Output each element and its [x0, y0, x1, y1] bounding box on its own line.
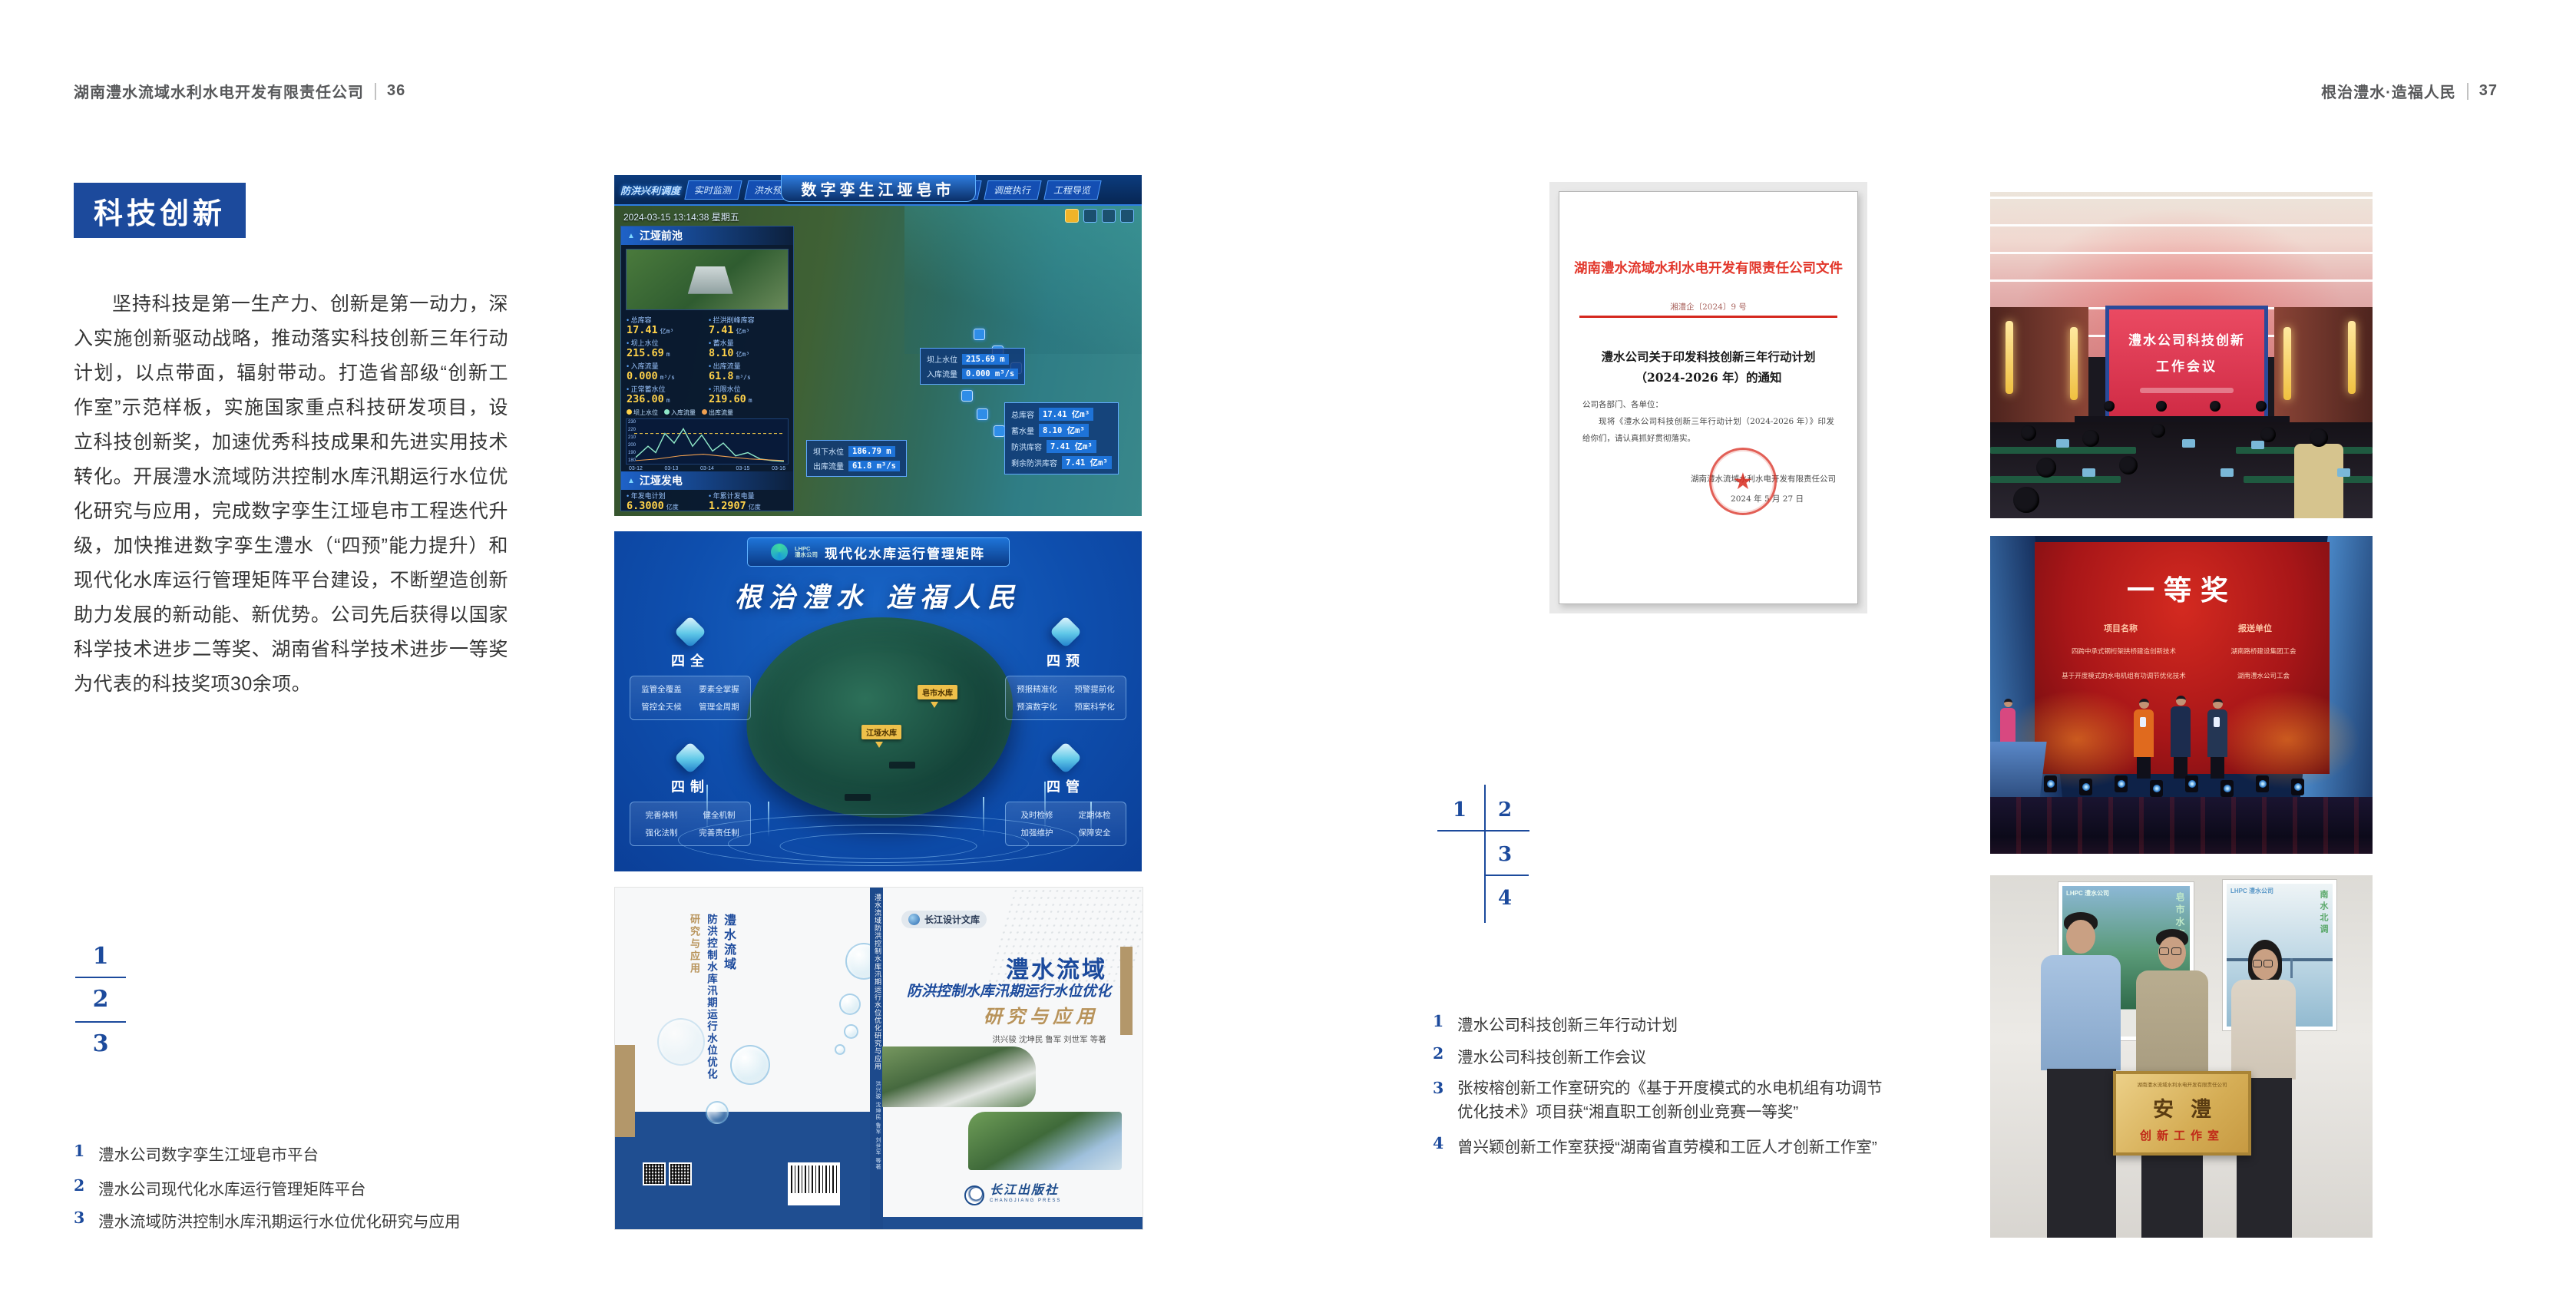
laptop [2221, 468, 2234, 477]
caption-number: 3 [1433, 1076, 1450, 1124]
stage-light [2115, 775, 2128, 792]
wall-lamp [2070, 327, 2078, 400]
stage-light [2079, 779, 2092, 795]
sensor-marker-icon [961, 390, 973, 402]
figure-index-divider [1437, 830, 1529, 832]
document-number: 湘澧企〔2024〕9 号 [1559, 301, 1857, 312]
panel-sizhi: 四制 完善体制 健全机制 强化法制 完善责任制 [630, 746, 751, 846]
caption-number: 3 [74, 1208, 91, 1232]
figure-index-divider [75, 977, 126, 978]
body-paragraph: 坚持科技是第一生产力、创新是第一动力，深入实施创新驱动战略，推动落实科技创新三年… [74, 287, 508, 702]
panel-siquan: 四全 监管全覆盖 要素全掌握 管控全天候 管理全周期 [630, 620, 751, 720]
stage-light [2044, 775, 2057, 792]
water-bubble [839, 994, 861, 1015]
photo-innovation-studio-plaque: LHPC 澧水公司 皂市水库 LHPC 澧水公司 南水北调 湖南澧水流域水利水电… [1990, 875, 2373, 1238]
cover-photo-valley-dam [882, 1046, 1036, 1107]
water-bubble [835, 1044, 845, 1055]
book-spine: 澧水流域防洪控制水库汛期运行水位优化研究与应用 洪兴骏 沈坤民 鲁军 刘世军 等… [870, 888, 883, 1229]
reservoir-stats: 总库容17.41亿m³ 拦洪削峰库容7.41亿m³ 坝上水位215.69m 蓄水… [621, 314, 793, 407]
caption-row: 3 澧水流域防洪控制水库汛期运行水位优化研究与应用 [74, 1208, 461, 1232]
power-panel-header: ▲ 江垭发电 [621, 471, 793, 490]
document-salutation: 公司各部门、各单位： [1582, 396, 1834, 413]
red-seal-icon: ★ [1709, 448, 1777, 515]
laptop [2082, 468, 2095, 477]
panel-header: ▲ 江垭前池 [621, 226, 793, 245]
caption-row: 2 澧水公司现代化水库运行管理矩阵平台 [74, 1176, 366, 1199]
qr-code [643, 1162, 666, 1185]
attendee-head [2021, 425, 2036, 441]
panel-siguan: 四管 及时检修 定期体检 加强维护 保障安全 [1005, 746, 1126, 846]
caption-number: 1 [1433, 1012, 1450, 1035]
sensor-marker-icon [974, 329, 985, 340]
desk-row [1990, 476, 2121, 483]
stage-light [2221, 780, 2234, 797]
presenter-suit [2167, 696, 2194, 779]
platform-title: 现代化水库运行管理矩阵 [825, 543, 985, 562]
caption-number: 4 [1433, 1134, 1450, 1157]
book-authors: 洪兴骏 沈坤民 鲁军 刘世军 等著 [982, 1033, 1116, 1045]
figure-official-document: 湖南澧水流域水利水电开发有限责任公司文件 湘澧企〔2024〕9 号 澧水公司关于… [1549, 182, 1867, 613]
person-head [2066, 920, 2095, 954]
forecast-icon [1050, 616, 1082, 648]
photo-award-ceremony: 一等奖 项目名称 报送单位 四跨中承式钢桁架拱桥建造创新技术 湖南路桥建设集团工… [1990, 536, 2373, 854]
project-name: 四跨中承式钢桁架拱桥建造创新技术 [2047, 646, 2201, 656]
laptop [2337, 468, 2350, 477]
panelist-head [2210, 401, 2221, 412]
tan-accent-block [615, 1045, 635, 1137]
marker-jiangya-reservoir: 江垭水库 [861, 725, 901, 739]
plaque-company-line: 湖南澧水流域水利水电开发有限责任公司 [2116, 1080, 2248, 1088]
caption-row: 1 澧水公司数字孪生江垭皂市平台 [74, 1142, 319, 1165]
marker-pin-icon [875, 742, 883, 752]
submitting-unit: 湖南路桥建设集团工会 [2210, 646, 2317, 656]
reservoir-water [904, 204, 1142, 354]
submitting-unit: 湖南澧水公司工会 [2210, 671, 2317, 680]
toolbar-icons [1065, 209, 1134, 223]
tab-dispatch-execute: 调度执行 [984, 180, 1041, 200]
stat-cell: 入库流量0.000m³/s [627, 361, 706, 383]
audience-area [1990, 422, 2373, 518]
attendee-in-yellow [2294, 444, 2343, 518]
caption-text: 澧水公司数字孪生江垭皂市平台 [98, 1142, 319, 1165]
column-header-unit: 报送单位 [2238, 622, 2272, 634]
laptop [2056, 439, 2069, 448]
panelist-head [2104, 401, 2115, 412]
chart-y-axis: 230220210 200190180 [628, 419, 636, 464]
wall-lamp [2348, 321, 2356, 394]
glasses-icon [2159, 947, 2169, 955]
awardee-navy [2204, 699, 2231, 779]
small-station-marker [845, 794, 871, 801]
screen-title-line2: 工作会议 [2109, 355, 2264, 375]
marker-pin-icon [931, 702, 938, 712]
document-body: 现将《澧水公司科技创新三年行动计划（2024-2026 年）》印发给你们，请认真… [1582, 413, 1834, 447]
wall-lamp [2283, 327, 2291, 400]
figure-index-2: 2 [81, 986, 120, 1013]
chart-x-axis: 03-1203-1303-14 03-1503-16 [621, 466, 793, 471]
attendee-head [2036, 458, 2056, 478]
stat-cell: 汛限水位219.60m [709, 384, 788, 406]
laptop [2182, 439, 2195, 448]
photo-innovation-meeting: 澧水公司科技创新 工作会议 [1990, 192, 2373, 518]
legend-item: 入库流量 [664, 408, 696, 417]
document-red-rule [1579, 316, 1837, 318]
glasses-icon [2171, 947, 2181, 955]
stat-cell: 拦洪削峰库容7.41亿m³ [709, 315, 788, 337]
locate-icon [1102, 209, 1116, 223]
figure-digital-twin-platform: 防洪兴利调度 实时监测 洪水预报 防汛预警 风险预判 预案生成 调度执行 工程导… [614, 175, 1142, 516]
header-left: 湖南澧水流域水利水电开发有限责任公司 36 [74, 80, 405, 102]
stat-cell: 坝上水位215.69m [627, 338, 706, 360]
stage-light [2256, 775, 2269, 792]
back-cover-title: 澧水流域 防洪控制水库汛期运行水位优化 研究与应用 [686, 914, 736, 1138]
plaque-name: 安澧 [2116, 1093, 2248, 1122]
popup-row: 入库流量0.000 m³/s [927, 368, 1018, 379]
page-number-right: 37 [2479, 82, 2498, 100]
power-panel-title: 江垭发电 [640, 473, 683, 488]
figure-index-divider [75, 1021, 126, 1023]
host-in-pink [1996, 699, 2019, 748]
person-pants [2047, 1069, 2116, 1238]
caption-text: 澧水流域防洪控制水库汛期运行水位优化研究与应用 [98, 1208, 461, 1232]
screen-content: 澧水公司科技创新 工作会议 [2109, 309, 2264, 421]
popup-row: 蓄水量8.10 亿m³ [1011, 424, 1112, 437]
panel-siyu: 四预 预报精准化 预警提前化 预演数字化 预案科学化 [1005, 620, 1126, 720]
settings-icon [1120, 209, 1134, 223]
section-title: 科技创新 [94, 190, 226, 232]
power-stats: 年发电计划6.3000亿度 年累计发电量1.2907亿度 月累计发电量3359.… [621, 490, 793, 511]
sensor-marker-icon [994, 425, 1005, 437]
book-subtitle2: 研究与应用 [964, 1001, 1118, 1028]
panelist-head [2156, 401, 2167, 412]
upstream-popup: 坝上水位215.69 m 入库流量0.000 m³/s [920, 348, 1025, 385]
figure-index-4: 4 [1490, 887, 1520, 910]
lhpc-logo: LHPC 澧水公司 [2066, 889, 2109, 898]
popup-row: 坝下水位186.79 m [813, 445, 900, 457]
studio-plaque: 湖南澧水流域水利水电开发有限责任公司 安澧 创新工作室 [2113, 1071, 2251, 1156]
document-title-line1: 澧水公司关于印发科技创新三年行动计划 [1559, 348, 1857, 365]
user-icon [1065, 209, 1079, 223]
ripple-ring [779, 833, 977, 859]
panel-title: 四管 [1005, 776, 1126, 796]
legend-item: 坝上水位 [627, 408, 658, 417]
plaque-subtitle: 创新工作室 [2116, 1127, 2248, 1143]
caption-row: 4 曾兴颖创新工作室获授“湖南省直劳模和工匠人才创新工作室” [1433, 1134, 1877, 1157]
stat-cell: 正常蓄水位236.00m [627, 384, 706, 406]
person-khaki-polo [2136, 970, 2208, 1078]
caption-number: 1 [74, 1142, 91, 1165]
panel-items: 及时检修 定期体检 加强维护 保障安全 [1005, 802, 1126, 846]
panel-icon: ▲ [627, 477, 635, 485]
platform-header: LHPC澧水公司 现代化水库运行管理矩阵 [747, 537, 1010, 567]
stage-light [2150, 780, 2163, 797]
caption-row: 2 澧水公司科技创新工作会议 [1433, 1044, 1646, 1067]
section-title-box: 科技创新 [74, 183, 246, 238]
caption-number: 2 [1433, 1044, 1450, 1067]
tab-project-tour: 工程导览 [1043, 180, 1101, 200]
page-number-left: 36 [387, 82, 405, 100]
figure-index-1: 1 [1444, 798, 1475, 822]
popup-row: 总库容17.41 亿m³ [1011, 408, 1112, 421]
figure-index-divider [1484, 785, 1486, 923]
publisher-logo-icon [964, 1185, 984, 1205]
panel-items: 监管全覆盖 要素全掌握 管控全天候 管理全周期 [630, 676, 751, 720]
figure-index-3: 3 [81, 1030, 120, 1057]
attendee-head [2151, 424, 2165, 438]
attendee-head [2260, 427, 2276, 442]
caption-row: 3 张桉榕创新工作室研究的《基于开度模式的水电机组有功调节优化技术》项目获“湘直… [1433, 1076, 1887, 1124]
sensor-marker-icon [977, 408, 988, 420]
document-title-line2: （2024-2026 年）的通知 [1559, 369, 1857, 385]
stat-cell: 出库流量61.8m³/s [709, 361, 788, 383]
stat-cell: 总库容17.41亿m³ [627, 315, 706, 337]
lhpc-logo: LHPC 澧水公司 [2230, 887, 2273, 895]
header-slogan: 根治澧水·造福人民 [2321, 80, 2456, 102]
panel-title: 四全 [630, 650, 751, 670]
wall-lamp [2006, 321, 2013, 394]
dam-shape [688, 266, 733, 294]
panel-icon: ▲ [627, 232, 635, 240]
caption-text: 澧水公司现代化水库运行管理矩阵平台 [98, 1176, 366, 1199]
stage-light [2291, 779, 2304, 795]
glasses-icon [2253, 960, 2262, 967]
panel-items: 预报精准化 预警提前化 预演数字化 预案科学化 [1005, 676, 1126, 720]
basin-3d-map [739, 608, 1020, 828]
chart-lines [627, 419, 788, 464]
publisher-name: 长江出版社 [990, 1184, 1061, 1195]
figure-index-3: 3 [1490, 843, 1520, 866]
maintenance-icon [1050, 742, 1082, 774]
publisher-name-en: CHANGJIANG PRESS [990, 1195, 1061, 1207]
isbn-barcode [788, 1162, 840, 1205]
award-title: 一等奖 [2035, 568, 2330, 608]
popup-row: 坝上水位215.69 m [927, 353, 1018, 365]
slogan-calligraphy: 根治澧水 造福人民 [614, 576, 1142, 615]
laptop [2251, 441, 2264, 449]
attendee-head [2119, 456, 2138, 474]
attendee-head [2013, 487, 2039, 513]
caption-text: 曾兴颖创新工作室获授“湖南省直劳模和工匠人才创新工作室” [1457, 1134, 1877, 1157]
tab-realtime-monitor: 实时监测 [684, 180, 742, 200]
panel-title: 四预 [1005, 650, 1126, 670]
screen-title-line1: 澧水公司科技创新 [2109, 329, 2264, 349]
series-name: 长江设计文库 [924, 913, 980, 926]
screen-glow [2214, 689, 2360, 789]
publisher-mark: 长江出版社 CHANGJIANG PRESS [964, 1184, 1061, 1207]
qr-code [669, 1162, 692, 1185]
stage-light [2185, 775, 2198, 792]
popup-row: 防洪库容7.41 亿m³ [1011, 440, 1112, 453]
caption-text: 澧水公司科技创新工作会议 [1457, 1044, 1646, 1067]
document-page: 湖南澧水流域水利水电开发有限责任公司文件 湘澧企〔2024〕9 号 澧水公司关于… [1559, 191, 1858, 604]
company-logo-icon [771, 544, 788, 560]
bridge-pier [2290, 958, 2293, 978]
marker-zaoshi-reservoir: 皂市水库 [918, 685, 957, 699]
person-blue-polo [2041, 955, 2121, 1070]
monitor-icon [674, 616, 706, 648]
panel-title: 江垭前池 [640, 228, 683, 243]
poster-calligraphy: 南水北调 [2317, 890, 2330, 936]
stat-cell: 蓄水量8.10亿m³ [709, 338, 788, 360]
stat-cell: 年累计发电量1.2907亿度 [709, 491, 788, 511]
attendee-head [2310, 428, 2328, 447]
popup-row: 剩余防洪库容7.41 亿m³ [1011, 456, 1112, 469]
water-bubble [844, 1024, 858, 1039]
header-divider [375, 83, 376, 100]
person-beige-top [2231, 980, 2296, 1080]
caption-text: 张桉榕创新工作室研究的《基于开度模式的水电机组有功调节优化技术》项目获“湘直职工… [1457, 1076, 1887, 1124]
desk-row [1990, 447, 2136, 454]
timestamp: 2024-03-15 13:14:38 星期五 [623, 210, 739, 223]
dashboard-title: 数字孪生江垭皂市 [781, 175, 976, 202]
light-pillar [983, 797, 984, 837]
floor-reflections [1990, 797, 2373, 854]
caption-number: 2 [74, 1176, 91, 1199]
logo-text: LHPC澧水公司 [795, 546, 818, 558]
header-right: 根治澧水·造福人民 37 [2321, 80, 2498, 102]
header-divider [2467, 83, 2469, 100]
dam-inset-photo [626, 249, 789, 310]
attendee-head [2082, 430, 2099, 447]
chart-legend: 坝上水位 入库流量 出库流量 [621, 407, 793, 417]
legend-item: 出库流量 [702, 408, 733, 417]
water-level-chart: 230220210 200190180 [626, 418, 789, 465]
glasses-icon [2264, 960, 2273, 967]
mode-label: 防洪兴利调度 [620, 183, 680, 197]
figure-matrix-platform: LHPC澧水公司 现代化水库运行管理矩阵 根治澧水 造福人民 皂市水库 江垭水库… [614, 531, 1142, 871]
panelist-head [2256, 401, 2267, 412]
screen-date-line [2140, 388, 2233, 393]
panel-title: 四制 [630, 776, 751, 796]
institution-icon [674, 742, 706, 774]
popup-row: 出库流量61.8 m³/s [813, 460, 900, 471]
column-header-project: 项目名称 [2104, 622, 2138, 634]
document-red-header: 湖南澧水流域水利水电开发有限责任公司文件 [1559, 258, 1857, 277]
project-name: 基于开度模式的水电机组有功调节优化技术 [2047, 671, 2201, 680]
small-station-marker [889, 762, 915, 769]
left-data-panel: ▲ 江垭前池 总库容17.41亿m³ 拦洪削峰库容7.41亿m³ 坝上水位215… [620, 226, 794, 511]
figure-index-2: 2 [1490, 798, 1520, 822]
downstream-popup: 坝下水位186.79 m 出库流量61.8 m³/s [806, 440, 907, 477]
stat-cell: 年发电计划6.3000亿度 [627, 491, 706, 511]
awardee-orange [2130, 699, 2158, 779]
series-badge: 长江设计文库 [901, 911, 987, 928]
layers-icon [1083, 209, 1097, 223]
panel-items: 完善体制 健全机制 强化法制 完善责任制 [630, 802, 751, 846]
capacity-popup: 总库容17.41 亿m³ 蓄水量8.10 亿m³ 防洪库容7.41 亿m³ 剩余… [1004, 402, 1119, 474]
figure-index-divider [1484, 875, 1529, 876]
cover-photo-power-station [968, 1112, 1122, 1170]
light-pillar [768, 802, 769, 837]
book-subtitle: 防洪控制水库汛期运行水位优化 [904, 980, 1113, 1000]
header-company: 湖南澧水流域水利水电开发有限责任公司 [74, 80, 364, 102]
figure-index-1: 1 [81, 943, 120, 970]
caption-row: 1 澧水公司科技创新三年行动计划 [1433, 1012, 1678, 1035]
globe-icon [908, 914, 920, 925]
caption-text: 澧水公司科技创新三年行动计划 [1457, 1012, 1678, 1035]
figure-book-cover: 澧水流域 防洪控制水库汛期运行水位优化 研究与应用 澧水流域防洪控制水库汛期运行… [614, 887, 1143, 1230]
meeting-screen: 澧水公司科技创新 工作会议 [2105, 306, 2268, 425]
